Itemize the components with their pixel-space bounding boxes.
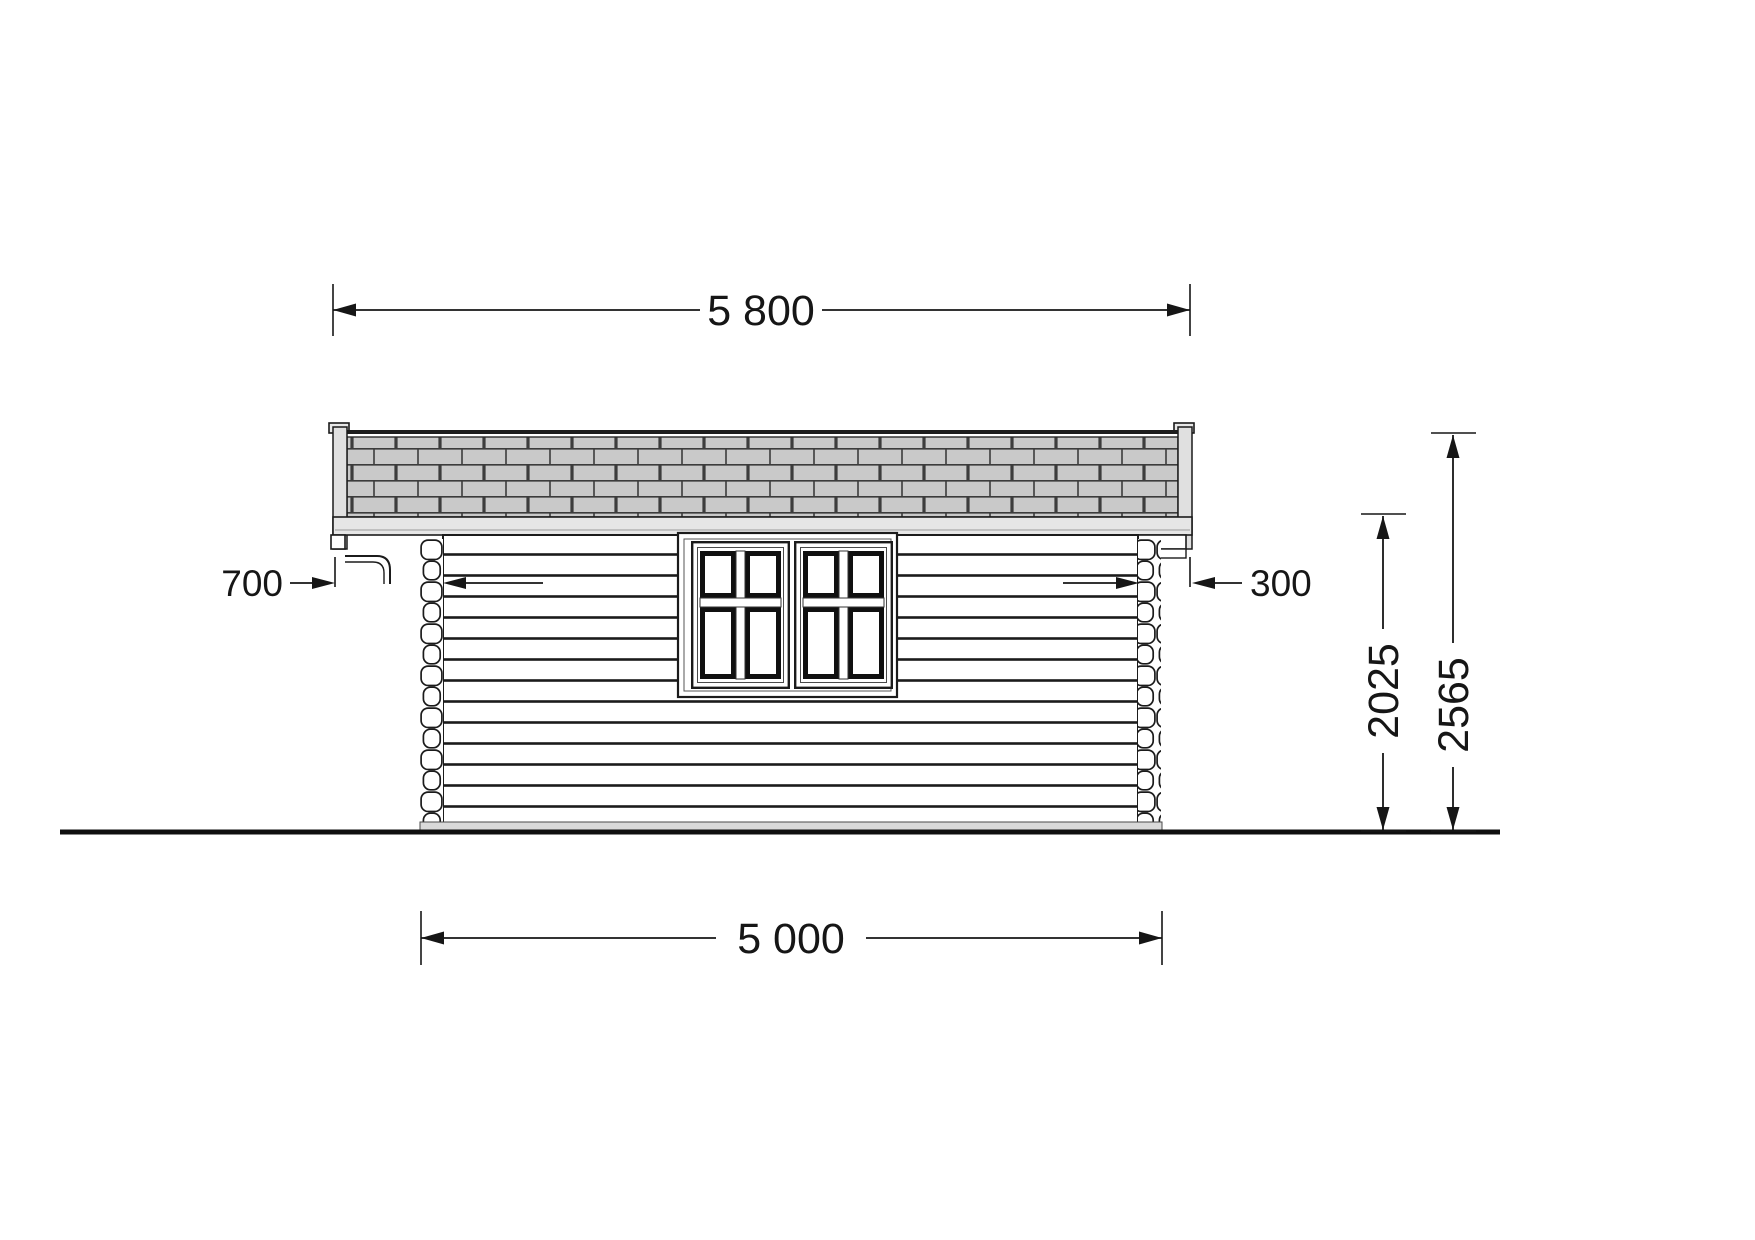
dim-wall-width: 5 000	[421, 911, 1162, 965]
dim-label-wall-height: 2025	[1360, 643, 1408, 739]
dim-label-roof-width: 5 800	[707, 287, 815, 335]
arrow-right-icon	[1167, 304, 1190, 317]
gutter-right-step	[1158, 549, 1186, 558]
arrow-down-icon	[1447, 807, 1460, 830]
roof-shingle-band	[347, 437, 1178, 517]
dim-label-total-height: 2565	[1430, 657, 1478, 753]
dim-wall-height: 2025	[1360, 514, 1408, 831]
corner-logs-right	[1138, 539, 1161, 830]
dim-label-right-overhang: 300	[1250, 563, 1312, 604]
dim-total-height: 2565	[1430, 433, 1478, 831]
arrow-down-icon	[1377, 807, 1390, 830]
gutter-left-inner-curve	[345, 562, 384, 584]
roof-ridge-edge	[333, 430, 1192, 434]
cabin-graphic	[60, 423, 1500, 832]
arrow-left-icon	[333, 304, 356, 317]
dim-label-wall-width: 5 000	[737, 915, 845, 963]
elevation-drawing-canvas: 5 800 5 000 700 300 2025	[0, 0, 1755, 1240]
roof	[329, 423, 1194, 549]
corner-logs-left	[420, 539, 443, 830]
dim-label-left-overhang: 700	[221, 563, 283, 604]
arrow-right-icon	[312, 577, 335, 589]
window	[678, 533, 897, 697]
window-sash-left	[692, 542, 789, 688]
dim-roof-width: 5 800	[333, 284, 1190, 336]
gutter-left	[331, 535, 390, 584]
arrow-right-icon	[1139, 932, 1162, 945]
arrow-left-icon	[421, 932, 444, 945]
cabin-elevation-svg: 5 800 5 000 700 300 2025	[0, 0, 1755, 1240]
gutter-left-endcap	[331, 535, 345, 549]
window-sash-right	[795, 542, 892, 688]
